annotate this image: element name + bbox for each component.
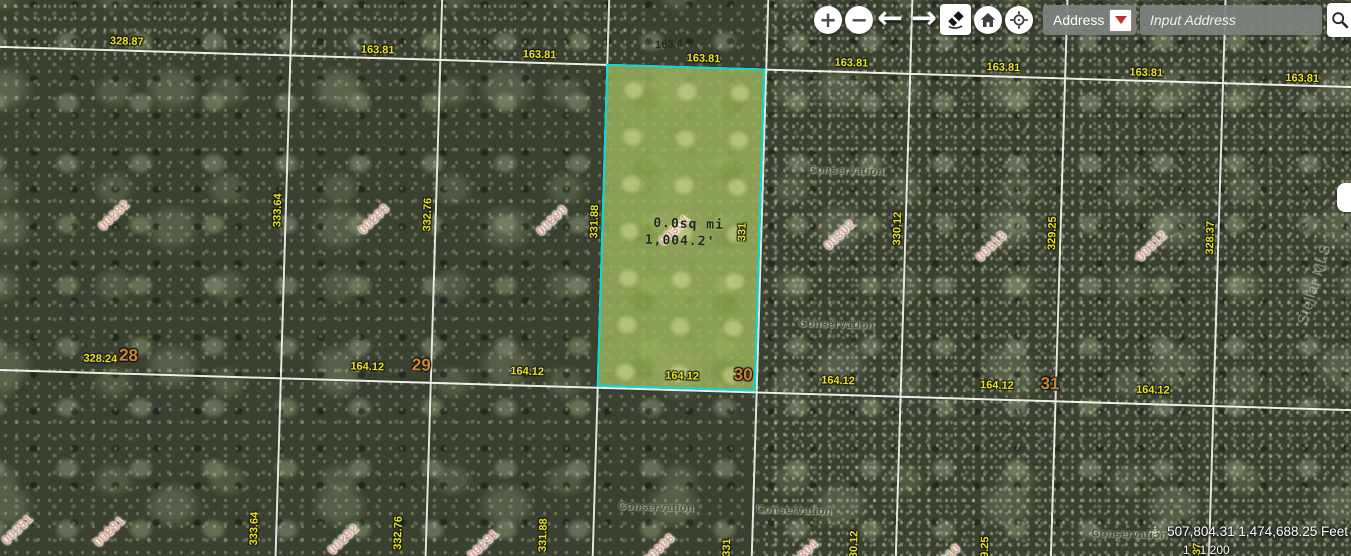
parcel-boundary-line: [893, 0, 913, 556]
side-panel-tab[interactable]: [1337, 183, 1351, 212]
parcel-id-label: 00312: [1133, 228, 1169, 264]
coordinate-readout: 507,804.31 1,474,688.25 Feet: [1149, 524, 1348, 539]
dimension-label: 164.12: [980, 379, 1014, 392]
address-label: Address: [1053, 12, 1104, 28]
dimension-label: 331.88: [537, 518, 550, 552]
dimension-label: 333.64: [248, 512, 261, 546]
zoom-in-button[interactable]: +: [814, 6, 842, 34]
parcel-id-label: 00290: [533, 202, 569, 238]
land-use-label: Conservation: [808, 164, 885, 178]
back-arrow-button[interactable]: ←: [877, 0, 903, 36]
map-scale-label: 1 : 1,200: [1183, 543, 1230, 556]
target-icon: [1009, 10, 1029, 30]
search-icon: [1330, 10, 1350, 30]
parcel-id-label: 00310: [927, 541, 963, 556]
dimension-label: 328.87: [110, 35, 144, 48]
search-button[interactable]: [1327, 3, 1351, 37]
dimension-label: 164.12: [1136, 384, 1170, 397]
dimension-label: 329.25: [1046, 216, 1059, 250]
dropdown-arrow-icon: [1115, 16, 1127, 24]
zoom-out-button[interactable]: −: [845, 6, 873, 34]
grid-layer: 328.87163.81163.81163.81163.81163.81163.…: [0, 0, 1351, 556]
dimension-label: 333.64: [271, 193, 284, 227]
minus-icon: −: [850, 10, 868, 31]
dimension-label: 329.25: [978, 536, 991, 556]
dimension-label: 164.12: [510, 365, 544, 378]
dimension-label: 163.81: [834, 57, 868, 70]
map-viewer-app: 328.87163.81163.81163.81163.81163.81163.…: [0, 0, 1351, 556]
right-arrow-icon: →: [911, 0, 937, 36]
home-icon: [978, 10, 998, 30]
address-type-selector[interactable]: Address: [1043, 5, 1136, 35]
dimension-label: 328.37: [1204, 221, 1217, 255]
dimension-label: 164.12: [350, 360, 384, 373]
dimension-label: 164.12: [821, 374, 855, 387]
address-dropdown-button[interactable]: [1109, 9, 1132, 32]
dimension-label: 163.81: [1129, 66, 1163, 79]
parcel-id-label: 00304: [785, 537, 821, 556]
parcel-id-label: 00303: [641, 531, 677, 556]
selected-parcel-highlight[interactable]: [597, 64, 766, 392]
parcel-boundary-line: [424, 0, 444, 556]
dimension-label: 163.81: [523, 48, 557, 61]
measure-icon: [945, 9, 967, 31]
dimension-label: 163.81: [361, 44, 395, 57]
home-button[interactable]: [974, 6, 1002, 34]
section-number-label: 28: [119, 346, 139, 367]
plus-icon: +: [819, 10, 837, 31]
measure-tool-button[interactable]: [940, 4, 971, 35]
dimension-label: 328.24: [83, 352, 117, 365]
dimension-label: 330.12: [848, 530, 861, 556]
land-use-label: Conservation: [798, 318, 875, 332]
parcel-id-label: 00282: [95, 197, 131, 233]
parcel-id-label: 00313: [973, 228, 1009, 264]
left-arrow-icon: ←: [877, 0, 903, 36]
land-use-label: Conservation: [756, 504, 833, 518]
parcel-boundary-line: [1048, 0, 1068, 556]
address-search-input[interactable]: [1140, 5, 1322, 35]
dimension-label: 163.81: [986, 61, 1020, 74]
dimension-label: 331: [721, 538, 734, 556]
dimension-label: 330.12: [891, 212, 904, 246]
section-number-label: 31: [1040, 374, 1060, 395]
land-use-label: Conservation: [618, 500, 695, 514]
locate-button[interactable]: [1005, 6, 1033, 34]
dimension-label: 332.76: [421, 198, 434, 232]
dimension-label: 163.81: [1285, 72, 1319, 85]
crosshair-icon: [1149, 526, 1161, 538]
parcel-boundary-line: [274, 0, 294, 556]
parcel-id-label: 00302: [821, 217, 857, 253]
dimension-label: 332.76: [392, 516, 405, 550]
coordinates-text: 507,804.31 1,474,688.25 Feet: [1167, 524, 1348, 539]
dimension-label: 163.4: [655, 38, 683, 51]
forward-arrow-button[interactable]: →: [911, 0, 937, 36]
section-number-label: 29: [412, 355, 432, 376]
parcel-id-label: 00293: [355, 201, 391, 237]
dimension-label: 331.88: [588, 205, 601, 239]
dimension-label: 163.81: [687, 52, 721, 65]
